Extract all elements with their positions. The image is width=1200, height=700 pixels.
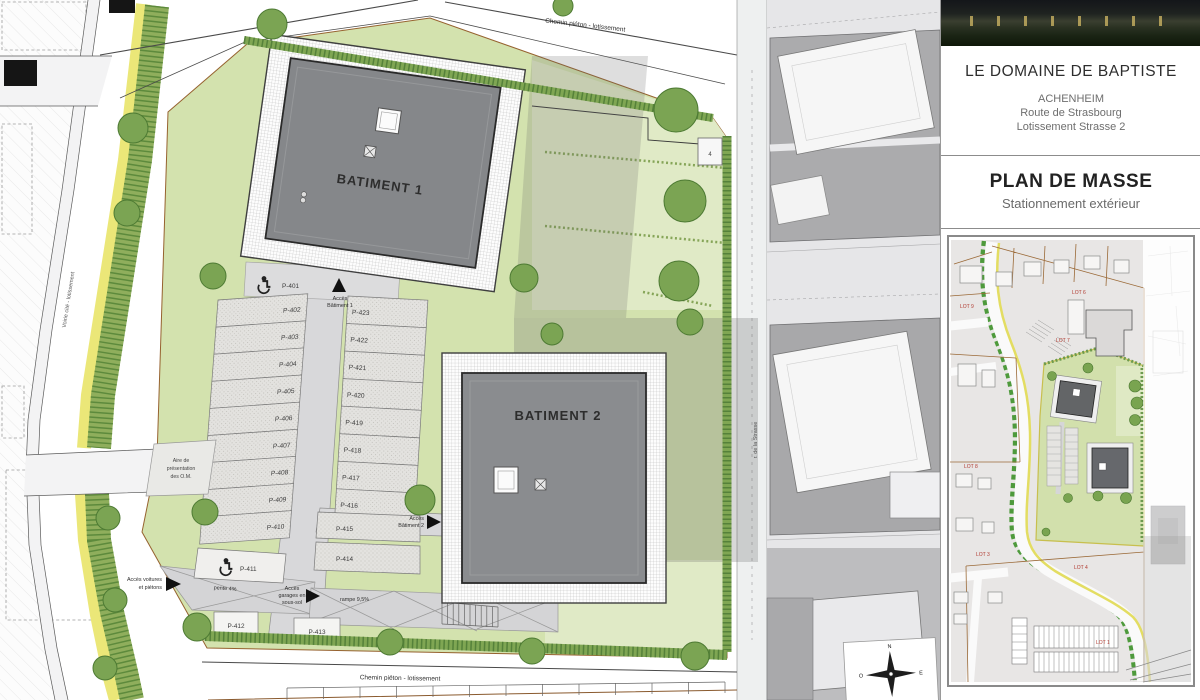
building-1: BATIMENT 1: [241, 34, 526, 291]
existing-building-black: [109, 0, 135, 13]
lot-label: LOT 4: [1074, 565, 1088, 571]
location-line: ACHENHEIM: [941, 92, 1200, 106]
location-line: Route de Strasbourg: [941, 106, 1200, 120]
lot-label: LOT 3: [976, 552, 990, 558]
access-building1-label: Bâtiment 1: [327, 303, 353, 309]
location-line: Lotissement Strasse 2: [941, 120, 1200, 134]
stall-label: P-416: [340, 502, 358, 510]
lot-label: LOT 6: [1072, 290, 1086, 296]
access-cars-label: Accès voitures: [127, 577, 162, 583]
stall-label: P-415: [336, 526, 353, 533]
lot-label: LOT 1: [1096, 640, 1110, 646]
building2-label: BATIMENT 2: [514, 408, 601, 423]
compass-n: N: [887, 644, 891, 650]
plan-de-masse-sheet: 4: [0, 0, 1200, 700]
stall-label: P-417: [342, 475, 360, 483]
stall-label: P-414: [336, 556, 353, 563]
access-garage-label: garages en: [279, 593, 306, 599]
road-right-label: r. de la Strasse: [753, 422, 759, 459]
path-bottom-label: Chemin piéton - lotissement: [360, 674, 441, 682]
overview-minimap: LOT 9 LOT 6 LOT 7 LOT 8 LOT 3 LOT 4 LOT …: [947, 235, 1195, 687]
ramp-label: rampe 9,5%: [340, 597, 369, 603]
skylight: [375, 108, 401, 134]
stall-label: P-420: [347, 392, 365, 400]
stall-label: P-404: [279, 361, 297, 369]
stall-label: P-407: [273, 442, 291, 450]
title-sidebar: LE DOMAINE DE BAPTISTE ACHENHEIM Route d…: [940, 0, 1200, 700]
stall-label: P-409: [269, 496, 287, 504]
roof-hatch-box: [535, 479, 546, 490]
access-building2-label: Accès: [409, 516, 424, 522]
access-building2-label: Bâtiment 2: [398, 523, 424, 529]
stall-label: P-403: [281, 334, 299, 342]
context-buildings-top: [770, 30, 940, 242]
access-cars-label: et piétons: [139, 585, 163, 591]
stall-label: P-412: [227, 623, 244, 630]
minimap-building2: [1087, 443, 1133, 493]
access-garage-label: sous-sol: [282, 600, 302, 606]
building-2: BATIMENT 2: [442, 353, 666, 603]
compass-e: E: [919, 670, 923, 676]
minimap-site: [1036, 348, 1144, 546]
lot-label: LOT 8: [964, 464, 978, 470]
context-neighbourhood: [767, 0, 940, 700]
minimap-building1: [1050, 375, 1101, 423]
stall-label: P-408: [271, 469, 289, 477]
cross-road-middle-left: [24, 449, 158, 496]
stall-label: P-411: [240, 566, 257, 573]
context-buildings-middle: [770, 318, 940, 535]
plan-title-block: PLAN DE MASSE Stationnement extérieur: [941, 156, 1200, 229]
project-title: LE DOMAINE DE BAPTISTE: [941, 63, 1200, 81]
waste-label: Aire de: [173, 458, 190, 464]
project-photo: [941, 0, 1200, 46]
title-block: LE DOMAINE DE BAPTISTE ACHENHEIM Route d…: [941, 46, 1200, 156]
stall-label: P-418: [344, 447, 362, 455]
overview-map-box: LOT 9 LOT 6 LOT 7 LOT 8 LOT 3 LOT 4 LOT …: [941, 229, 1200, 693]
lot-label: LOT 9: [960, 304, 974, 310]
waste-collection-area: Aire de présentation des O.M.: [146, 440, 216, 496]
stall-label: P-423: [352, 309, 370, 317]
stall-label: P-405: [277, 388, 295, 396]
photo-lit-windows: [957, 16, 1186, 26]
stall-label: P-401: [282, 283, 299, 290]
compass-rose: N E O S: [843, 638, 938, 700]
stall-label: P-419: [345, 419, 363, 427]
stall-label: P-421: [348, 364, 366, 372]
waste-label: des O.M.: [170, 474, 191, 480]
plan-subtitle: Stationnement extérieur: [941, 196, 1200, 211]
waste-label: présentation: [167, 466, 196, 472]
access-garage-label: Accès: [285, 586, 300, 592]
stall-label: P-410: [266, 524, 284, 532]
roof-hatch-box: [364, 145, 376, 157]
stall-label: P-406: [275, 415, 293, 423]
plan-title: PLAN DE MASSE: [941, 171, 1200, 193]
stall-label: P-402: [283, 307, 301, 315]
main-site-plan: 4: [0, 0, 940, 700]
lot-label: LOT 7: [1056, 338, 1070, 344]
access-building1-label: Accès: [333, 296, 348, 302]
stall-label: P-422: [350, 337, 368, 345]
existing-building-black: [4, 60, 37, 86]
